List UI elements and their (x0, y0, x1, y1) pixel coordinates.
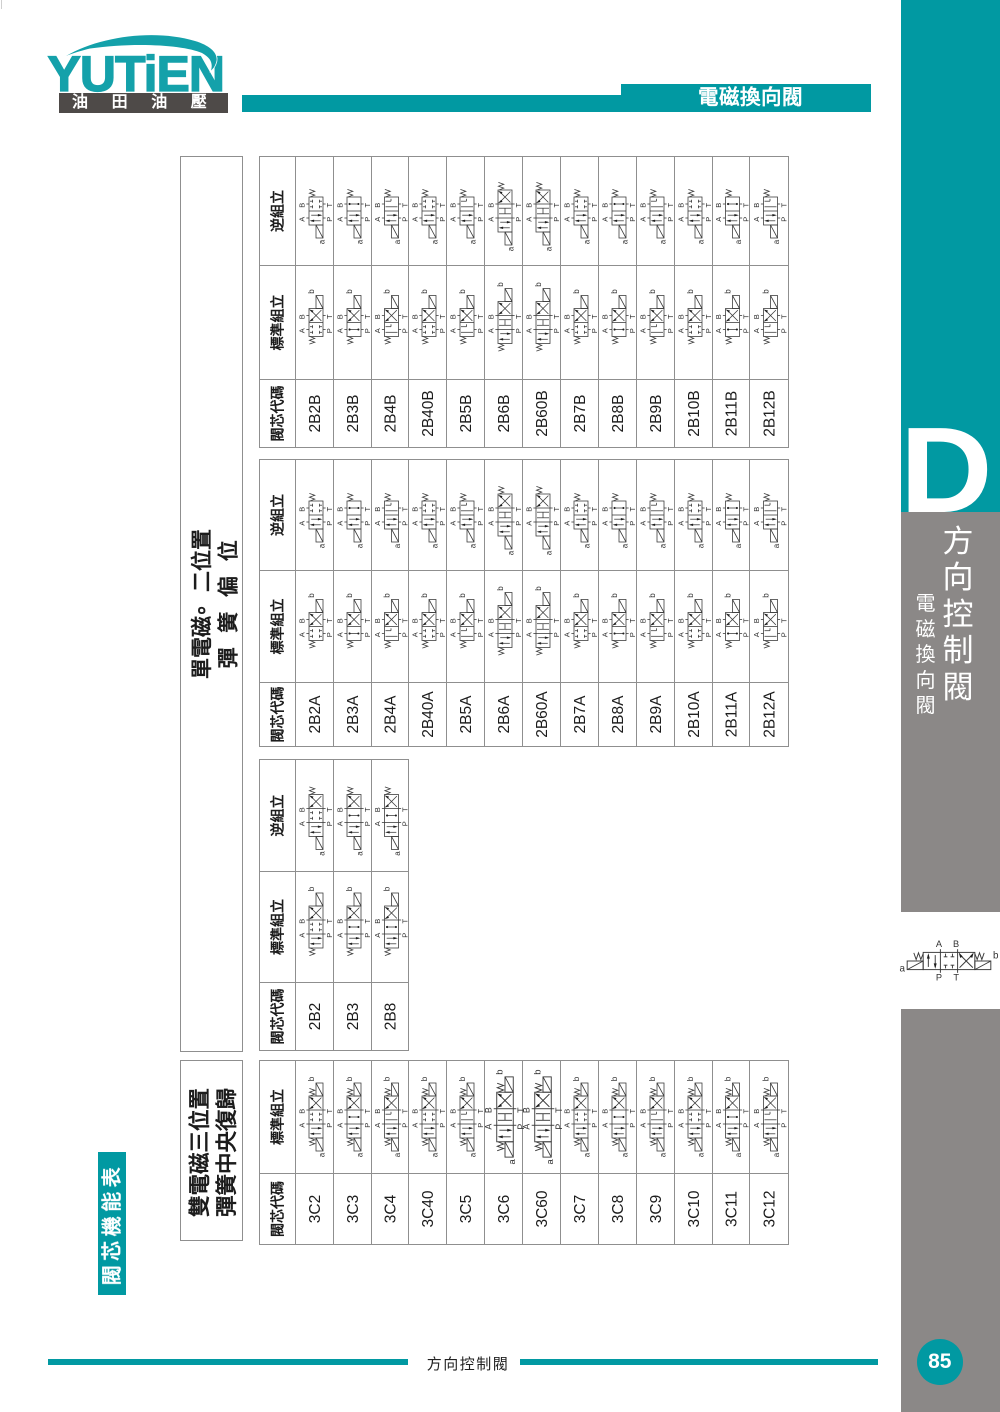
svg-text:閥芯代碼: 閥芯代碼 (270, 386, 286, 442)
svg-text:逆組立: 逆組立 (270, 795, 286, 837)
svg-text:P: P (742, 328, 751, 333)
svg-text:b: b (420, 1076, 429, 1081)
svg-text:T: T (742, 202, 751, 207)
svg-text:a: a (772, 1152, 781, 1157)
svg-text:b: b (383, 593, 392, 598)
svg-text:P: P (438, 328, 447, 333)
svg-text:a: a (734, 543, 743, 548)
svg-text:B: B (298, 919, 307, 924)
svg-text:P: P (552, 217, 561, 222)
svg-text:a: a (621, 239, 630, 244)
svg-text:A: A (298, 821, 307, 826)
svg-text:A: A (298, 933, 307, 938)
svg-text:2B6A: 2B6A (496, 695, 513, 734)
svg-text:P: P (742, 1123, 751, 1128)
svg-text:a: a (507, 1158, 518, 1164)
svg-text:a: a (356, 851, 365, 856)
svg-text:T: T (590, 618, 599, 623)
svg-text:A: A (752, 217, 761, 222)
svg-text:標準組立: 標準組立 (270, 899, 286, 955)
svg-text:P: P (476, 217, 485, 222)
svg-text:b: b (420, 289, 429, 294)
svg-text:A: A (752, 521, 761, 526)
svg-text:T: T (704, 202, 713, 207)
svg-text:雙電磁三位置: 雙電磁三位置 (187, 1088, 212, 1217)
svg-text:T: T (514, 618, 523, 623)
svg-text:T: T (476, 314, 485, 319)
svg-text:A: A (525, 217, 534, 222)
svg-text:A: A (714, 521, 723, 526)
svg-text:B: B (487, 314, 496, 319)
svg-text:P: P (666, 1123, 675, 1128)
svg-text:A: A (298, 632, 307, 637)
svg-text:A: A (336, 328, 345, 333)
svg-text:B: B (677, 1109, 686, 1114)
svg-text:A: A (525, 521, 534, 526)
svg-text:A: A (487, 328, 496, 333)
svg-text:B: B (752, 1109, 761, 1114)
svg-text:b: b (345, 593, 354, 598)
svg-text:A: A (563, 1123, 572, 1128)
svg-text:a: a (583, 239, 592, 244)
svg-text:T: T (666, 202, 675, 207)
svg-text:a: a (393, 543, 402, 548)
svg-text:T: T (628, 506, 637, 511)
svg-text:2B5A: 2B5A (458, 695, 475, 734)
svg-text:P: P (780, 217, 789, 222)
svg-text:A: A (487, 521, 496, 526)
svg-text:a: a (318, 543, 327, 548)
svg-text:T: T (401, 807, 410, 812)
svg-text:P: P (325, 933, 334, 938)
svg-text:B: B (373, 1109, 382, 1114)
svg-text:b: b (610, 1076, 619, 1081)
svg-text:B: B (522, 1107, 532, 1113)
svg-text:A: A (639, 632, 648, 637)
svg-text:2B4B: 2B4B (382, 395, 399, 433)
svg-text:A: A (525, 632, 534, 637)
svg-text:T: T (780, 314, 789, 319)
svg-text:T: T (401, 202, 410, 207)
svg-text:B: B (373, 807, 382, 812)
svg-text:B: B (411, 203, 420, 208)
svg-text:P: P (628, 217, 637, 222)
svg-text:單電磁。二位置: 單電磁。二位置 (186, 529, 215, 679)
svg-text:A: A (449, 1123, 458, 1128)
svg-text:b: b (383, 886, 392, 891)
svg-text:b: b (762, 289, 771, 294)
svg-text:A: A (336, 1123, 345, 1128)
svg-text:b: b (345, 1076, 354, 1081)
svg-text:B: B (601, 507, 610, 512)
svg-text:P: P (325, 821, 334, 826)
svg-text:A: A (639, 521, 648, 526)
svg-text:T: T (590, 1108, 599, 1113)
svg-text:T: T (363, 918, 372, 923)
svg-text:T: T (438, 618, 447, 623)
svg-text:T: T (704, 1108, 713, 1113)
svg-text:A: A (677, 632, 686, 637)
svg-text:B: B (714, 507, 723, 512)
svg-text:T: T (325, 506, 334, 511)
svg-text:T: T (704, 314, 713, 319)
svg-text:a: a (431, 543, 440, 548)
svg-text:2B8A: 2B8A (610, 695, 627, 734)
svg-text:P: P (363, 328, 372, 333)
svg-text:a: a (469, 1152, 478, 1157)
svg-text:T: T (401, 314, 410, 319)
svg-text:A: A (752, 328, 761, 333)
svg-text:T: T (704, 618, 713, 623)
svg-text:A: A (373, 933, 382, 938)
svg-text:B: B (525, 618, 534, 623)
svg-text:b: b (383, 1076, 392, 1081)
svg-text:a: a (697, 239, 706, 244)
svg-text:閥芯代碼: 閥芯代碼 (270, 687, 286, 743)
svg-text:3C4: 3C4 (382, 1194, 399, 1223)
svg-text:T: T (363, 202, 372, 207)
svg-text:a: a (507, 550, 516, 555)
svg-text:P: P (552, 521, 561, 526)
svg-text:A: A (601, 217, 610, 222)
svg-text:T: T (514, 202, 523, 207)
svg-text:a: a (356, 1152, 365, 1157)
svg-text:2B11B: 2B11B (723, 391, 740, 436)
svg-text:a: a (431, 239, 440, 244)
svg-text:T: T (363, 618, 372, 623)
svg-text:B: B (563, 314, 572, 319)
svg-text:T: T (628, 314, 637, 319)
svg-text:T: T (476, 506, 485, 511)
svg-text:B: B (639, 314, 648, 319)
svg-text:P: P (363, 632, 372, 637)
svg-text:b: b (534, 282, 543, 287)
svg-text:P: P (438, 1123, 447, 1128)
svg-text:b: b (610, 593, 619, 598)
svg-text:A: A (298, 521, 307, 526)
svg-text:T: T (590, 202, 599, 207)
svg-text:標準組立: 標準組立 (270, 599, 286, 655)
svg-text:T: T (438, 202, 447, 207)
svg-text:P: P (363, 217, 372, 222)
svg-text:b: b (686, 1076, 695, 1081)
svg-text:a: a (621, 543, 630, 548)
svg-text:2B12A: 2B12A (761, 691, 778, 738)
svg-text:B: B (336, 507, 345, 512)
svg-text:b: b (648, 289, 657, 294)
svg-text:T: T (363, 1108, 372, 1113)
svg-text:A: A (373, 521, 382, 526)
svg-text:2B10B: 2B10B (686, 390, 703, 437)
svg-text:a: a (469, 543, 478, 548)
svg-text:A: A (484, 1124, 494, 1130)
svg-text:P: P (401, 328, 410, 333)
svg-text:a: a (734, 1152, 743, 1157)
svg-text:2B10A: 2B10A (686, 691, 703, 738)
svg-text:A: A (714, 328, 723, 333)
svg-text:B: B (601, 1109, 610, 1114)
svg-text:P: P (666, 217, 675, 222)
svg-text:T: T (401, 618, 410, 623)
svg-text:B: B (411, 507, 420, 512)
svg-text:3C8: 3C8 (610, 1195, 627, 1223)
svg-text:b: b (762, 593, 771, 598)
svg-text:2B6B: 2B6B (496, 395, 513, 433)
svg-text:2B12B: 2B12B (761, 390, 778, 437)
svg-text:A: A (449, 217, 458, 222)
svg-text:P: P (704, 1123, 713, 1128)
svg-text:P: P (514, 328, 523, 333)
svg-text:A: A (714, 632, 723, 637)
svg-text:A: A (336, 933, 345, 938)
svg-text:A: A (298, 1123, 307, 1128)
svg-text:a: a (734, 239, 743, 244)
svg-text:P: P (363, 933, 372, 938)
svg-text:b: b (533, 1070, 544, 1075)
svg-text:P: P (514, 217, 523, 222)
svg-text:3C12: 3C12 (761, 1190, 778, 1227)
svg-text:b: b (495, 1070, 506, 1075)
svg-text:B: B (298, 807, 307, 812)
svg-text:P: P (401, 1123, 410, 1128)
svg-text:B: B (487, 203, 496, 208)
svg-text:P: P (476, 328, 485, 333)
svg-text:T: T (363, 807, 372, 812)
svg-text:P: P (401, 521, 410, 526)
svg-text:A: A (752, 632, 761, 637)
svg-text:A: A (373, 821, 382, 826)
svg-text:3C7: 3C7 (572, 1195, 589, 1223)
svg-text:T: T (401, 506, 410, 511)
svg-text:P: P (780, 328, 789, 333)
svg-text:A: A (373, 217, 382, 222)
svg-text:B: B (677, 507, 686, 512)
svg-text:T: T (401, 1108, 410, 1113)
svg-text:A: A (411, 328, 420, 333)
svg-text:3C60: 3C60 (534, 1190, 551, 1227)
svg-text:A: A (298, 328, 307, 333)
svg-text:3C11: 3C11 (723, 1191, 740, 1227)
svg-text:P: P (780, 632, 789, 637)
svg-text:P: P (704, 632, 713, 637)
svg-text:B: B (639, 1109, 648, 1114)
svg-text:B: B (373, 507, 382, 512)
svg-text:b: b (724, 593, 733, 598)
svg-text:a: a (697, 543, 706, 548)
svg-text:T: T (476, 202, 485, 207)
svg-text:A: A (639, 328, 648, 333)
svg-text:B: B (639, 618, 648, 623)
svg-text:P: P (590, 1123, 599, 1128)
svg-text:A: A (677, 217, 686, 222)
svg-text:a: a (545, 550, 554, 555)
svg-text:3C40: 3C40 (420, 1190, 437, 1227)
svg-text:A: A (373, 328, 382, 333)
svg-text:B: B (714, 203, 723, 208)
svg-text:A: A (601, 632, 610, 637)
svg-text:A: A (752, 1123, 761, 1128)
svg-text:B: B (484, 1107, 494, 1113)
svg-text:P: P (666, 328, 675, 333)
svg-text:2B8B: 2B8B (610, 395, 627, 433)
svg-text:P: P (628, 632, 637, 637)
svg-text:P: P (325, 632, 334, 637)
svg-text:P: P (438, 217, 447, 222)
svg-text:B: B (563, 1109, 572, 1114)
svg-text:2B8: 2B8 (382, 1003, 399, 1031)
svg-text:P: P (438, 521, 447, 526)
svg-text:T: T (552, 202, 561, 207)
svg-text:P: P (401, 632, 410, 637)
svg-text:A: A (639, 1123, 648, 1128)
svg-text:B: B (449, 314, 458, 319)
svg-text:P: P (363, 1123, 372, 1128)
svg-text:B: B (336, 919, 345, 924)
svg-text:B: B (411, 618, 420, 623)
svg-text:A: A (336, 217, 345, 222)
svg-text:A: A (714, 217, 723, 222)
svg-text:B: B (449, 203, 458, 208)
svg-text:B: B (525, 203, 534, 208)
svg-text:B: B (752, 314, 761, 319)
svg-text:B: B (373, 314, 382, 319)
svg-text:T: T (476, 618, 485, 623)
svg-text:T: T (742, 618, 751, 623)
svg-text:B: B (752, 507, 761, 512)
svg-text:a: a (583, 1152, 592, 1157)
svg-text:A: A (336, 632, 345, 637)
svg-text:B: B (336, 1109, 345, 1114)
svg-text:A: A (525, 328, 534, 333)
svg-text:B: B (336, 618, 345, 623)
svg-text:B: B (411, 314, 420, 319)
svg-text:b: b (458, 289, 467, 294)
svg-text:2B5B: 2B5B (458, 395, 475, 433)
svg-text:標準組立: 標準組立 (270, 295, 286, 351)
svg-text:T: T (552, 314, 561, 319)
svg-text:P: P (780, 1123, 789, 1128)
svg-text:B: B (449, 618, 458, 623)
svg-text:T: T (628, 618, 637, 623)
svg-text:b: b (724, 1076, 733, 1081)
svg-text:b: b (307, 1076, 316, 1081)
svg-text:b: b (307, 289, 316, 294)
svg-text:P: P (325, 328, 334, 333)
svg-text:T: T (514, 314, 523, 319)
svg-text:P: P (628, 328, 637, 333)
svg-text:P: P (552, 328, 561, 333)
svg-text:T: T (325, 202, 334, 207)
svg-text:A: A (563, 632, 572, 637)
svg-text:T: T (590, 314, 599, 319)
svg-text:B: B (298, 507, 307, 512)
svg-text:b: b (648, 593, 657, 598)
svg-text:a: a (469, 239, 478, 244)
svg-text:B: B (373, 919, 382, 924)
svg-text:T: T (780, 618, 789, 623)
svg-text:3C10: 3C10 (686, 1190, 703, 1227)
svg-text:P: P (325, 217, 334, 222)
svg-text:A: A (298, 217, 307, 222)
svg-text:B: B (449, 507, 458, 512)
svg-text:B: B (487, 618, 496, 623)
svg-text:a: a (659, 1152, 668, 1157)
svg-text:A: A (639, 217, 648, 222)
svg-text:P: P (552, 632, 561, 637)
svg-text:b: b (307, 886, 316, 891)
svg-text:T: T (325, 618, 334, 623)
svg-text:b: b (572, 593, 581, 598)
svg-text:A: A (563, 521, 572, 526)
svg-text:P: P (325, 521, 334, 526)
svg-text:P: P (590, 217, 599, 222)
svg-text:A: A (411, 632, 420, 637)
svg-text:B: B (601, 314, 610, 319)
svg-text:a: a (393, 851, 402, 856)
svg-text:B: B (677, 618, 686, 623)
svg-text:逆組立: 逆組立 (270, 494, 286, 536)
svg-text:A: A (601, 1123, 610, 1128)
svg-text:T: T (628, 1108, 637, 1113)
svg-text:B: B (298, 314, 307, 319)
svg-text:P: P (514, 521, 523, 526)
svg-text:B: B (601, 203, 610, 208)
svg-text:a: a (507, 246, 516, 251)
svg-text:T: T (666, 506, 675, 511)
svg-text:逆組立: 逆組立 (270, 190, 286, 232)
svg-text:T: T (628, 202, 637, 207)
svg-text:T: T (325, 1108, 334, 1113)
svg-text:T: T (325, 918, 334, 923)
svg-text:2B9B: 2B9B (648, 395, 665, 433)
svg-text:2B40B: 2B40B (420, 390, 437, 437)
svg-text:2B11A: 2B11A (723, 691, 740, 737)
svg-text:P: P (666, 632, 675, 637)
svg-text:A: A (336, 521, 345, 526)
svg-text:a: a (393, 239, 402, 244)
svg-text:b: b (458, 1076, 467, 1081)
svg-text:B: B (373, 618, 382, 623)
svg-text:A: A (449, 521, 458, 526)
svg-text:A: A (601, 521, 610, 526)
svg-text:a: a (772, 543, 781, 548)
svg-text:2B2A: 2B2A (307, 695, 324, 734)
svg-text:B: B (298, 203, 307, 208)
svg-text:2B40A: 2B40A (420, 691, 437, 738)
svg-text:2B60B: 2B60B (534, 390, 551, 437)
svg-text:P: P (438, 632, 447, 637)
svg-text:P: P (704, 521, 713, 526)
svg-text:b: b (496, 282, 505, 287)
svg-text:B: B (752, 203, 761, 208)
svg-text:T: T (590, 506, 599, 511)
svg-text:P: P (590, 328, 599, 333)
svg-text:B: B (677, 314, 686, 319)
svg-text:b: b (686, 289, 695, 294)
svg-text:T: T (742, 314, 751, 319)
svg-text:P: P (363, 821, 372, 826)
svg-text:a: a (772, 239, 781, 244)
svg-text:a: a (431, 1152, 440, 1157)
svg-text:2B7A: 2B7A (572, 695, 589, 734)
svg-text:B: B (298, 1109, 307, 1114)
svg-text:b: b (572, 1076, 581, 1081)
svg-text:A: A (449, 328, 458, 333)
svg-text:閥芯代碼: 閥芯代碼 (270, 989, 286, 1045)
svg-text:3C5: 3C5 (458, 1195, 475, 1223)
svg-text:a: a (318, 239, 327, 244)
svg-text:a: a (318, 1152, 327, 1157)
